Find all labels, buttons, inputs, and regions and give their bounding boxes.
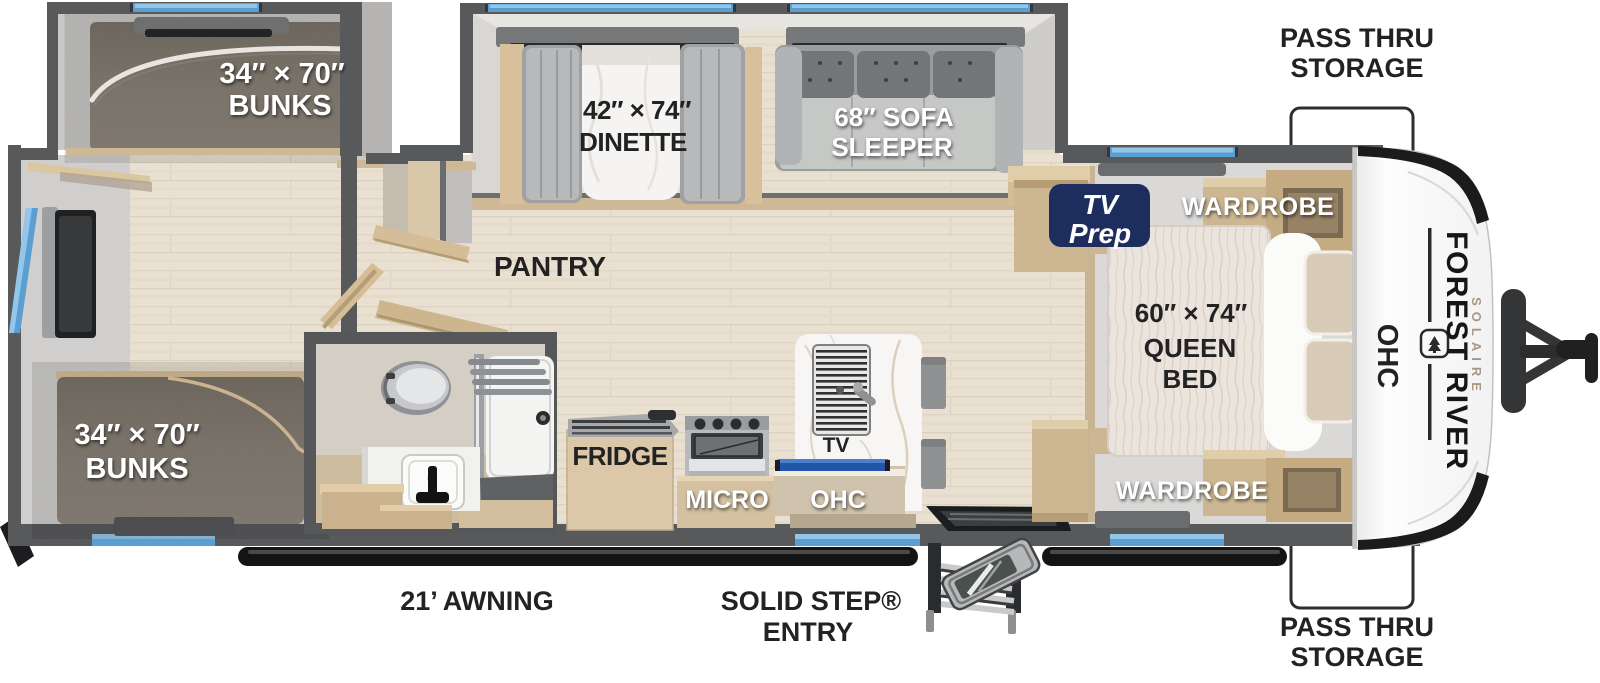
- svg-text:WARDROBE: WARDROBE: [1116, 477, 1269, 505]
- svg-text:BUNKS: BUNKS: [85, 453, 188, 485]
- svg-text:DINETTE: DINETTE: [579, 127, 687, 157]
- svg-text:68″ SOFA: 68″ SOFA: [834, 102, 954, 132]
- svg-text:34″ × 70″: 34″ × 70″: [74, 419, 199, 451]
- svg-text:PASS THRU: PASS THRU: [1280, 612, 1434, 642]
- svg-text:42″ × 74″: 42″ × 74″: [583, 95, 691, 125]
- svg-text:BED: BED: [1163, 364, 1218, 394]
- svg-text:STORAGE: STORAGE: [1290, 53, 1423, 83]
- svg-text:OHC: OHC: [810, 486, 866, 514]
- svg-text:SOLAIRE: SOLAIRE: [1469, 297, 1484, 397]
- svg-text:TV: TV: [1082, 189, 1120, 220]
- svg-text:60″ × 74″: 60″ × 74″: [1135, 298, 1247, 328]
- svg-text:BUNKS: BUNKS: [228, 90, 331, 122]
- svg-text:Prep: Prep: [1069, 218, 1131, 249]
- svg-text:STORAGE: STORAGE: [1290, 642, 1423, 672]
- svg-text:34″ × 70″: 34″ × 70″: [219, 58, 344, 90]
- svg-text:QUEEN: QUEEN: [1144, 333, 1236, 363]
- svg-text:TV: TV: [823, 434, 850, 457]
- svg-text:FRIDGE: FRIDGE: [572, 441, 667, 471]
- svg-text:FOREST RIVER: FOREST RIVER: [1440, 231, 1473, 471]
- svg-text:SLEEPER: SLEEPER: [831, 132, 953, 162]
- svg-text:MICRO: MICRO: [685, 486, 768, 514]
- svg-text:WARDROBE: WARDROBE: [1182, 193, 1335, 221]
- svg-text:PANTRY: PANTRY: [494, 251, 606, 282]
- svg-text:SOLID STEP®: SOLID STEP®: [721, 586, 902, 616]
- svg-text:ENTRY: ENTRY: [763, 617, 854, 647]
- svg-text:OHC: OHC: [1371, 324, 1403, 389]
- svg-text:21’ AWNING: 21’ AWNING: [400, 586, 554, 616]
- svg-text:PASS THRU: PASS THRU: [1280, 23, 1434, 53]
